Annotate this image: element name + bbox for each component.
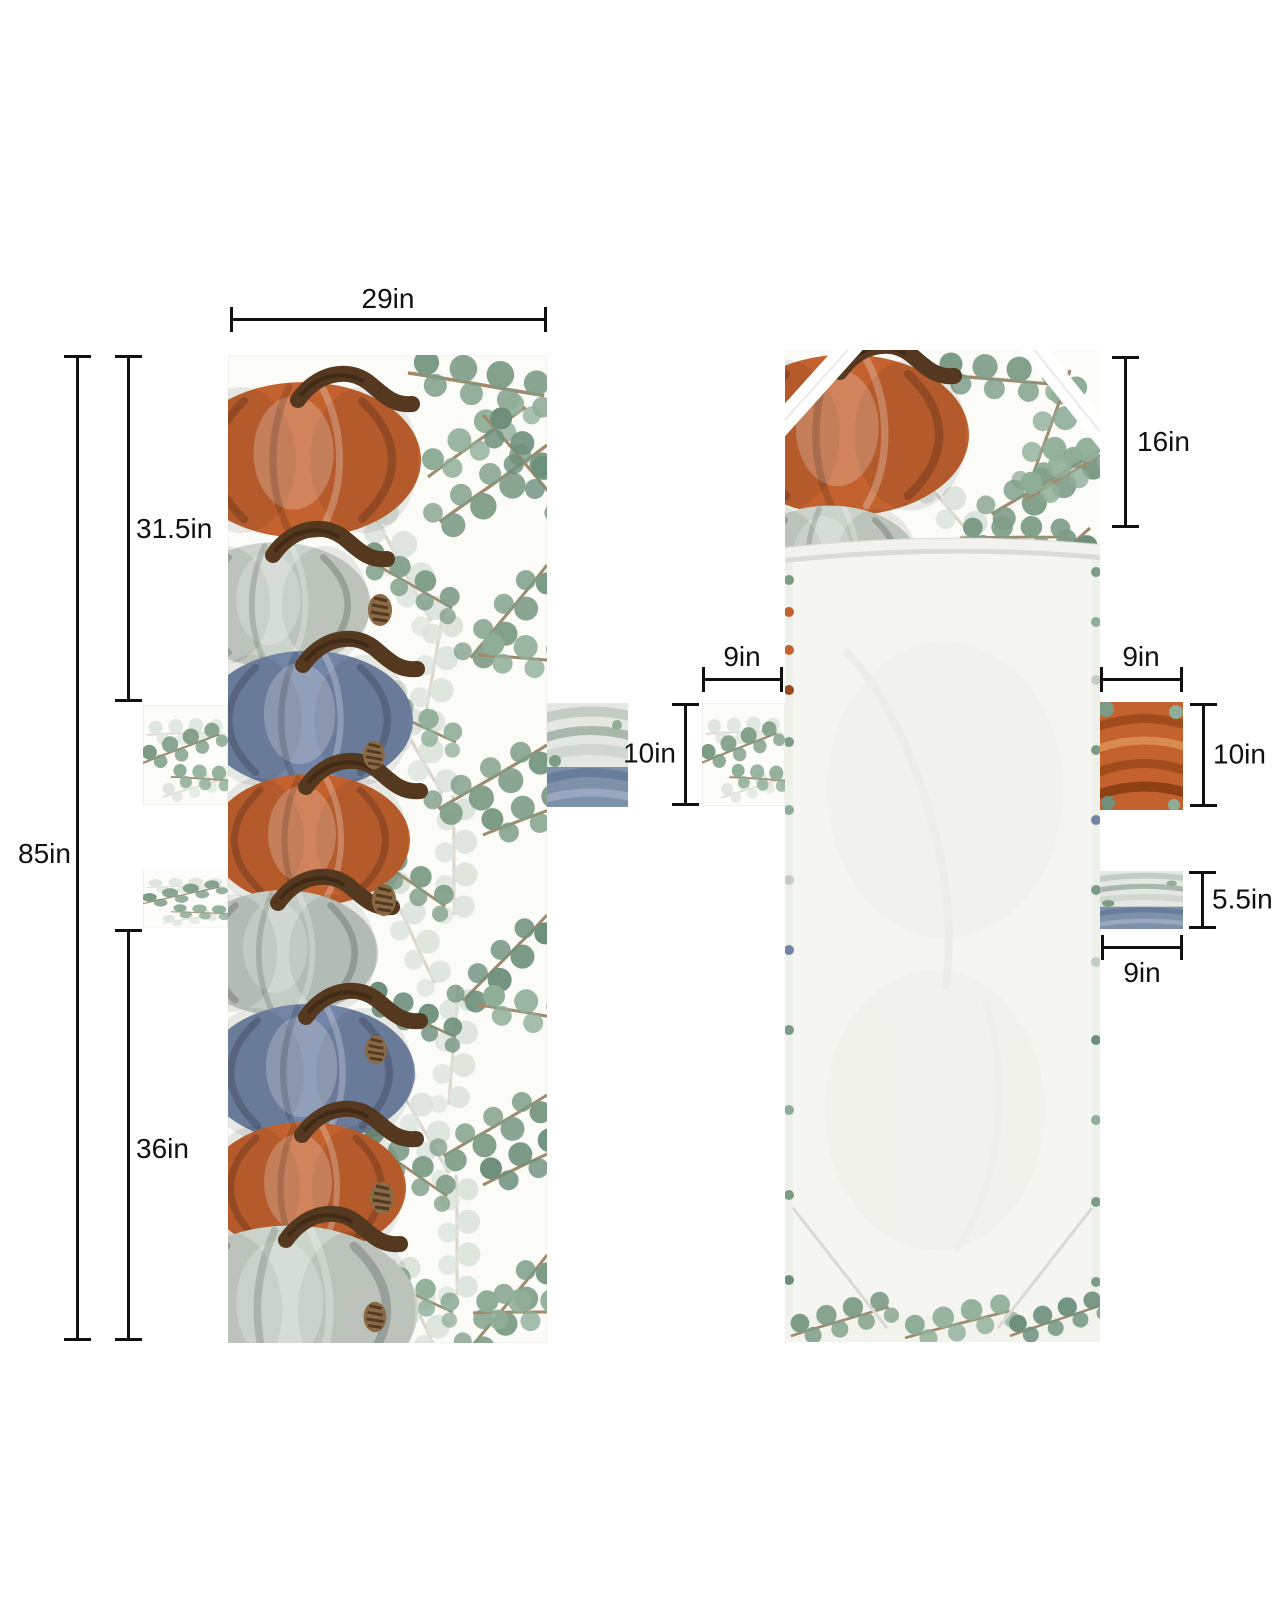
dim-cap — [1101, 935, 1104, 960]
dim-cap — [64, 1338, 91, 1341]
dim-cap — [544, 307, 547, 332]
dim-front-width-line — [230, 318, 547, 321]
dim-back-left-pocket-height-label: 10in — [623, 739, 676, 770]
dim-back-pocket-height-label: 16in — [1137, 427, 1190, 458]
dim-back-right-upper-pocket-height-label: 10in — [1213, 740, 1266, 771]
back-right-upper-pocket-tab — [1100, 702, 1183, 810]
dim-cap — [1190, 804, 1217, 807]
dim-back-right-lower-pocket-width-label: 9in — [1123, 958, 1160, 989]
dim-cap — [115, 1338, 142, 1341]
dim-cap — [1100, 667, 1103, 692]
dim-front-total-height-line — [76, 355, 79, 1341]
dim-cap — [1189, 926, 1216, 929]
dim-back-right-upper-pocket-width-line — [1100, 678, 1183, 681]
dim-cap — [230, 307, 233, 332]
dim-cap — [780, 667, 783, 692]
front-right-tab — [547, 703, 628, 807]
dim-front-width-label: 29in — [362, 284, 415, 315]
dim-cap — [672, 703, 699, 706]
dim-back-right-upper-pocket-width-label: 9in — [1122, 642, 1159, 673]
dim-front-total-height-label: 85in — [18, 839, 71, 870]
back-view-fabric — [785, 350, 1100, 1342]
dim-cap — [115, 699, 142, 702]
dim-cap — [115, 355, 142, 358]
dim-back-left-pocket-height-line — [684, 703, 687, 806]
dim-front-lower-section-line — [127, 929, 130, 1341]
dim-back-left-pocket-width-line — [702, 678, 783, 681]
dim-back-right-upper-pocket-height-line — [1202, 703, 1205, 807]
dim-cap — [1112, 356, 1139, 359]
dim-cap — [1180, 667, 1183, 692]
dim-front-upper-section-line — [127, 355, 130, 702]
dim-cap — [1112, 525, 1139, 528]
front-left-upper-tab — [143, 705, 228, 805]
dim-back-right-lower-pocket-height-line — [1201, 871, 1204, 929]
dim-back-left-pocket-width-label: 9in — [723, 642, 760, 673]
front-left-lower-tab — [143, 870, 228, 928]
front-view-fabric — [228, 355, 547, 1343]
dim-cap — [672, 803, 699, 806]
dim-back-pocket-height-line — [1124, 356, 1127, 528]
dim-cap — [1190, 703, 1217, 706]
back-flap-seam — [785, 544, 1100, 555]
dim-back-right-lower-pocket-width-line — [1101, 946, 1183, 949]
back-right-lower-pocket-tab — [1100, 871, 1183, 929]
dim-cap — [115, 929, 142, 932]
dim-cap — [64, 355, 91, 358]
dim-front-lower-section-label: 36in — [136, 1134, 189, 1165]
dim-front-upper-section-label: 31.5in — [136, 514, 212, 545]
dim-cap — [1189, 871, 1216, 874]
back-left-pocket-tab — [702, 703, 785, 806]
dim-back-right-lower-pocket-height-label: 5.5in — [1212, 885, 1273, 916]
chair-cover-dimension-diagram: 29in 85in 31.5in 36in 16in 9in 10in 9in … — [0, 0, 1280, 1600]
dim-cap — [1180, 935, 1183, 960]
dim-cap — [702, 667, 705, 692]
